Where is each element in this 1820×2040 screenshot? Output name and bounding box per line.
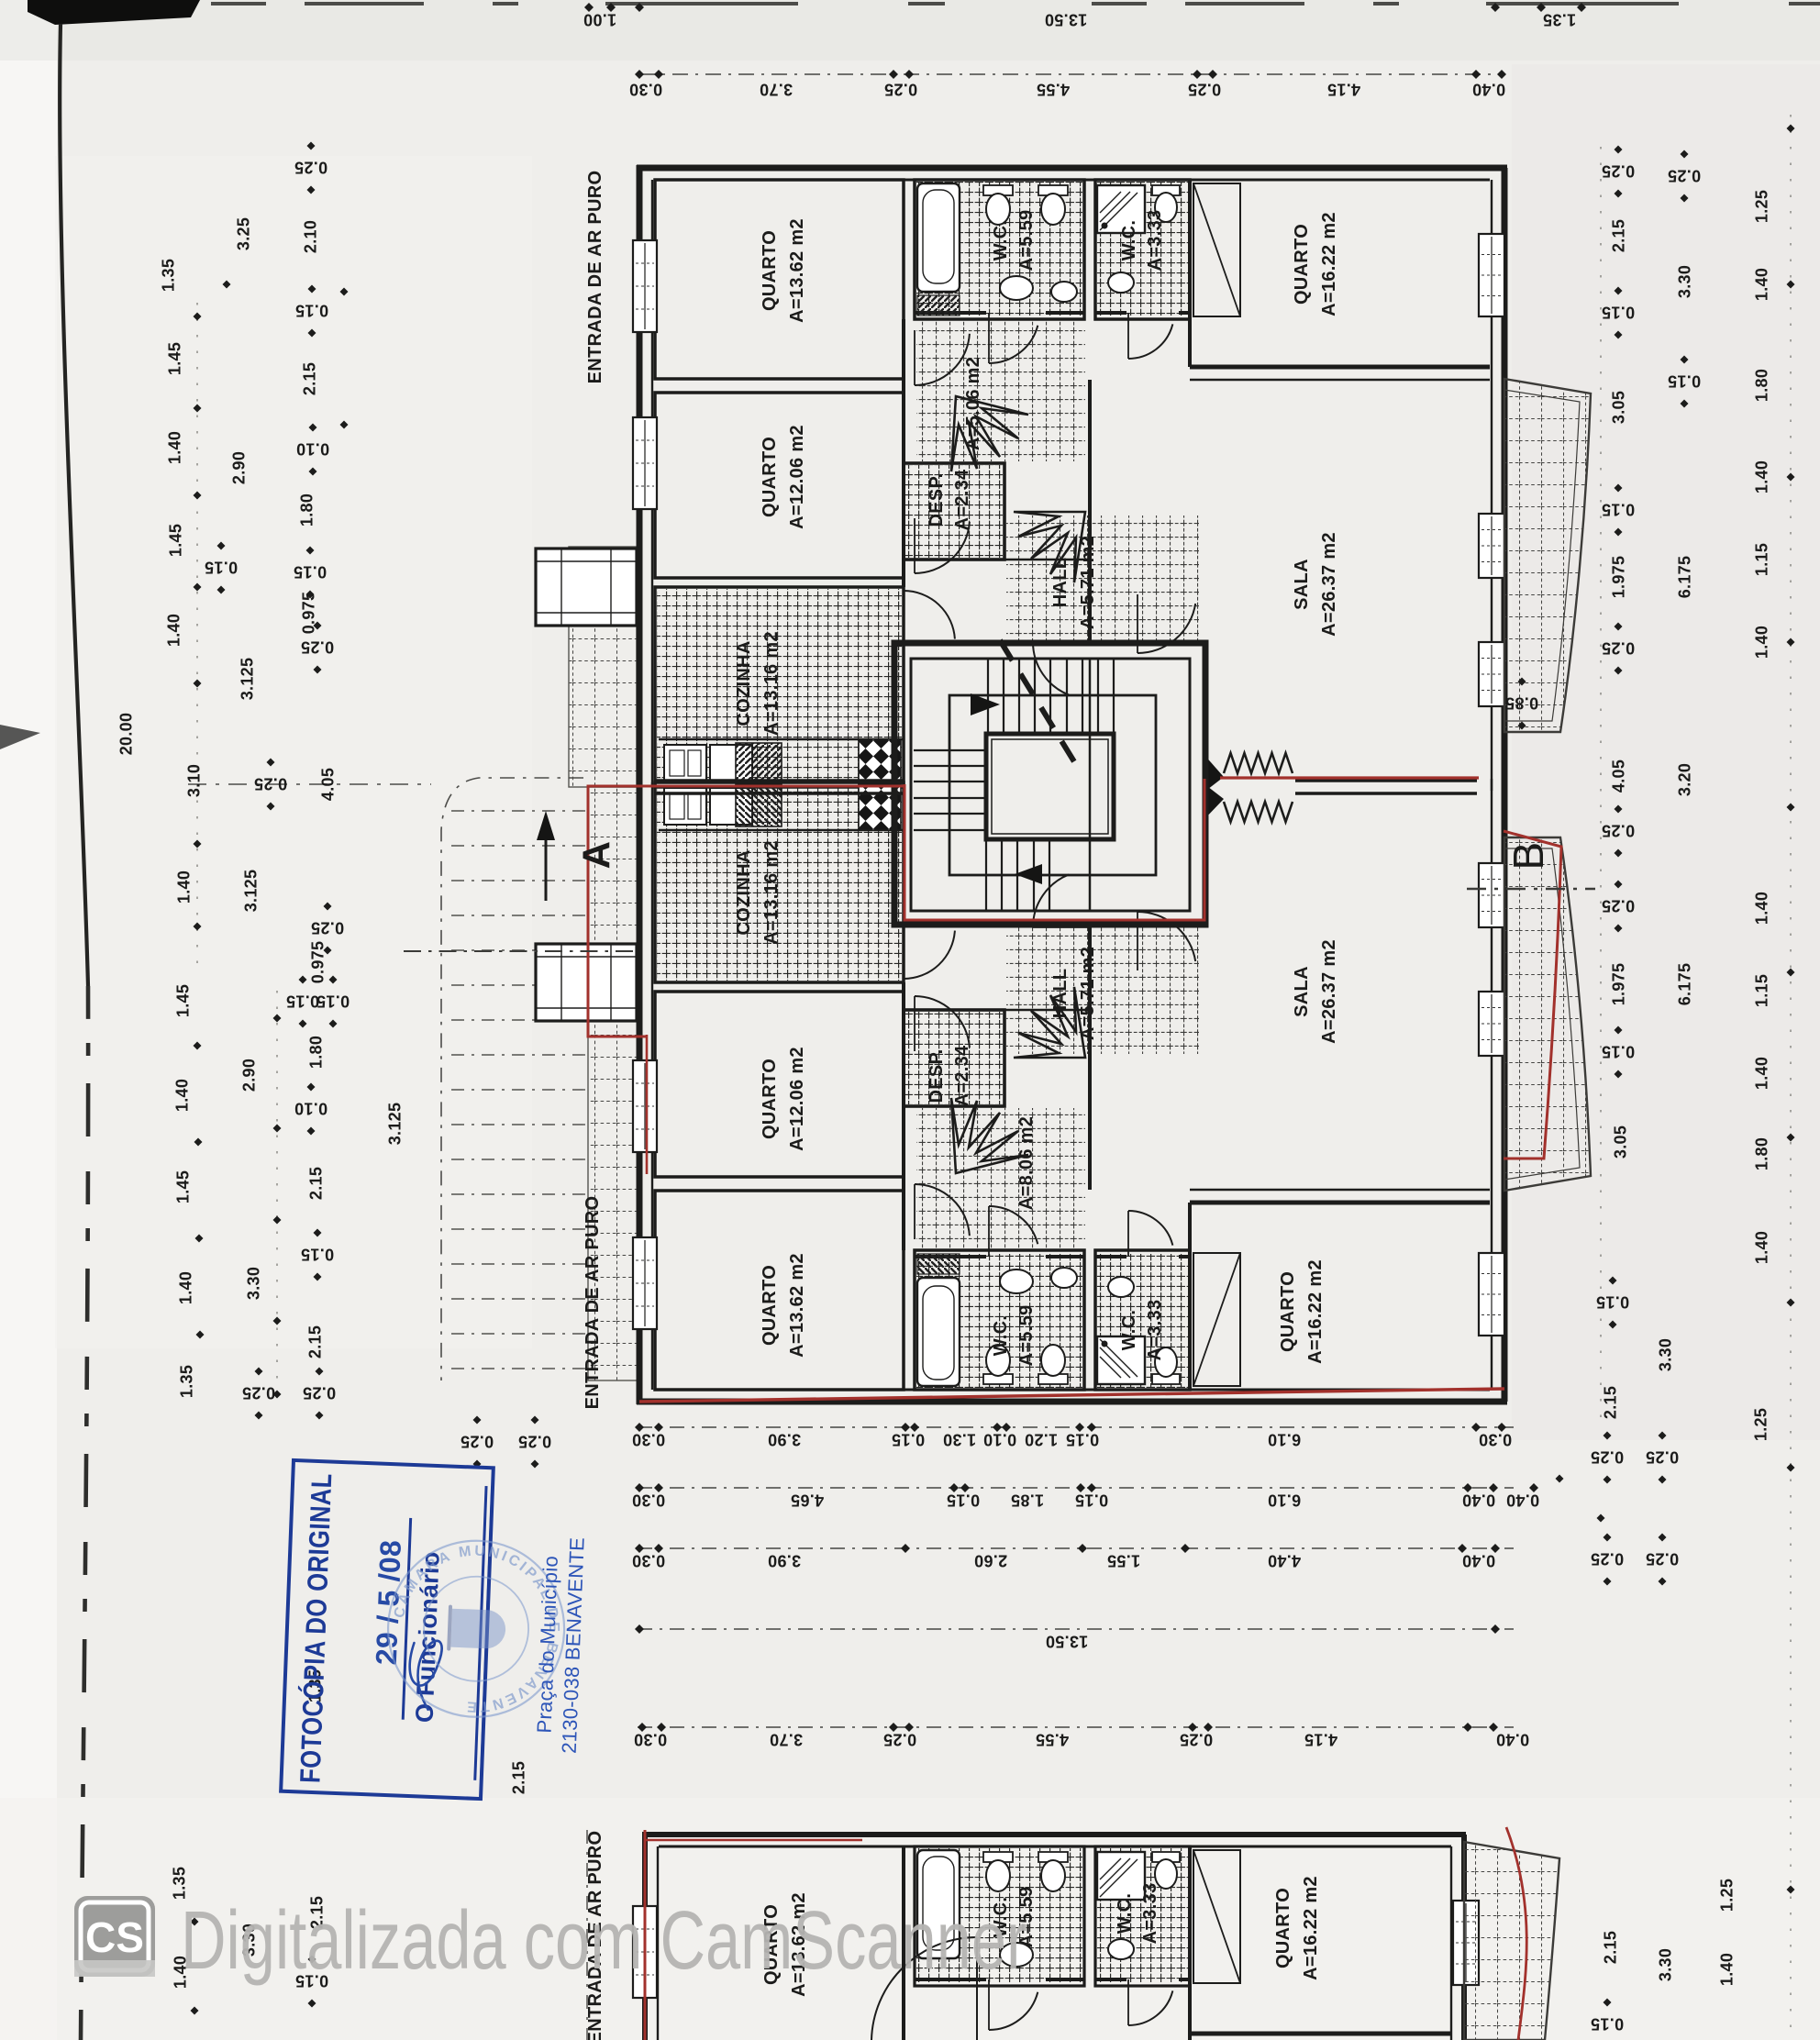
svg-text:0.25: 0.25 [461, 1433, 494, 1451]
svg-text:0.40: 0.40 [1496, 1731, 1529, 1749]
svg-text:COZINHA: COZINHA [734, 640, 754, 726]
svg-text:2.15: 2.15 [1609, 219, 1627, 252]
svg-text:W.C.: W.C. [1119, 1310, 1139, 1351]
svg-text:HALL: HALL [1050, 558, 1071, 608]
svg-text:4.05: 4.05 [1609, 759, 1627, 793]
svg-text:1.15: 1.15 [1752, 974, 1770, 1007]
svg-text:4.15: 4.15 [1304, 1731, 1337, 1749]
svg-text:0.40: 0.40 [1472, 81, 1505, 99]
svg-text:A=3.33: A=3.33 [1145, 1300, 1165, 1361]
svg-text:3.125: 3.125 [385, 1103, 404, 1146]
svg-text:QUARTO: QUARTO [1273, 1888, 1293, 1968]
svg-text:0.30: 0.30 [629, 81, 662, 99]
svg-text:A=16.22 m2: A=16.22 m2 [1305, 1259, 1326, 1364]
svg-text:4.55: 4.55 [1037, 81, 1070, 99]
svg-text:QUARTO: QUARTO [760, 1059, 780, 1139]
svg-text:0.25: 0.25 [1646, 1550, 1679, 1569]
svg-text:1.80: 1.80 [306, 1036, 325, 1069]
svg-text:QUARTO: QUARTO [760, 437, 780, 517]
svg-text:A=13.62 m2: A=13.62 m2 [787, 218, 807, 323]
svg-text:A=3.33: A=3.33 [1145, 210, 1165, 272]
svg-text:1.35: 1.35 [177, 1365, 195, 1398]
svg-text:QUARTO: QUARTO [760, 1265, 780, 1346]
svg-text:6.10: 6.10 [1268, 1491, 1301, 1510]
svg-text:4.05: 4.05 [318, 768, 337, 801]
svg-text:3.90: 3.90 [768, 1552, 801, 1570]
svg-text:QUARTO: QUARTO [760, 230, 780, 311]
svg-text:A=5.06 m2: A=5.06 m2 [963, 357, 983, 450]
svg-text:2.90: 2.90 [239, 1059, 258, 1092]
svg-text:1.40: 1.40 [164, 614, 183, 647]
svg-text:1.30: 1.30 [943, 1431, 976, 1449]
svg-text:1.40: 1.40 [1752, 1057, 1770, 1090]
svg-text:SALA: SALA [1292, 559, 1312, 610]
svg-text:0.30: 0.30 [634, 1731, 667, 1749]
svg-text:SALA: SALA [1292, 966, 1312, 1017]
svg-text:0.15: 0.15 [1602, 1043, 1635, 1061]
svg-text:1.35: 1.35 [1543, 11, 1576, 29]
svg-text:A=5.71 m2: A=5.71 m2 [1078, 947, 1098, 1040]
svg-text:6.10: 6.10 [1268, 1431, 1301, 1449]
svg-text:0.15: 0.15 [1602, 501, 1635, 519]
svg-text:A=13.16 m2: A=13.16 m2 [761, 840, 782, 945]
svg-text:1.35: 1.35 [159, 259, 177, 292]
svg-text:2.15: 2.15 [300, 362, 318, 395]
svg-text:A=5.59: A=5.59 [1016, 210, 1037, 272]
svg-text:3.30: 3.30 [1656, 1948, 1674, 1981]
svg-text:1.15: 1.15 [1752, 543, 1770, 576]
svg-text:1.80: 1.80 [1752, 369, 1770, 402]
svg-text:0.25: 0.25 [1602, 897, 1635, 915]
svg-text:2.15: 2.15 [305, 1325, 324, 1358]
svg-text:1.40: 1.40 [165, 431, 183, 464]
svg-text:1.975: 1.975 [1609, 963, 1627, 1006]
svg-text:0.25: 0.25 [1668, 167, 1701, 185]
svg-text:1.40: 1.40 [172, 1079, 191, 1112]
svg-text:3.25: 3.25 [234, 217, 252, 250]
svg-text:3.10: 3.10 [184, 764, 203, 797]
svg-text:1.40: 1.40 [176, 1271, 194, 1304]
svg-text:0.25: 0.25 [294, 159, 327, 177]
svg-text:HALL: HALL [1050, 969, 1071, 1019]
svg-text:3.125: 3.125 [238, 658, 256, 701]
svg-text:1.55: 1.55 [1107, 1552, 1140, 1570]
svg-text:0.30: 0.30 [632, 1491, 665, 1510]
svg-text:0.25: 0.25 [1646, 1448, 1679, 1467]
svg-text:0.15: 0.15 [1066, 1431, 1099, 1449]
svg-text:0.25: 0.25 [311, 919, 344, 937]
svg-text:0.15: 0.15 [1602, 304, 1635, 322]
svg-text:3.30: 3.30 [244, 1267, 262, 1300]
svg-text:2.15: 2.15 [509, 1761, 527, 1794]
svg-text:1.40: 1.40 [1752, 460, 1770, 493]
svg-text:0.25: 0.25 [254, 775, 287, 793]
svg-text:0.25: 0.25 [883, 1731, 916, 1749]
svg-text:A=16.22 m2: A=16.22 m2 [1319, 212, 1339, 316]
svg-text:2.15: 2.15 [1601, 1931, 1619, 1964]
svg-text:0.15: 0.15 [1591, 2015, 1624, 2034]
svg-text:0.15: 0.15 [1596, 1293, 1629, 1312]
svg-text:1.80: 1.80 [297, 493, 316, 527]
svg-text:0.85: 0.85 [1505, 694, 1538, 713]
svg-text:1.80: 1.80 [1752, 1137, 1770, 1170]
svg-text:COZINHA: COZINHA [734, 849, 754, 935]
svg-text:0.15: 0.15 [892, 1431, 925, 1449]
svg-text:A=5.59: A=5.59 [1016, 1305, 1037, 1367]
svg-text:1.25: 1.25 [1717, 1879, 1736, 1912]
svg-text:A=16.22 m2: A=16.22 m2 [1301, 1876, 1321, 1980]
svg-text:0.25: 0.25 [1591, 1448, 1624, 1467]
svg-text:4.15: 4.15 [1327, 81, 1360, 99]
svg-text:A=2.34: A=2.34 [952, 1045, 972, 1106]
svg-text:A=12.06 m2: A=12.06 m2 [787, 425, 807, 529]
svg-text:0.975: 0.975 [308, 941, 327, 984]
svg-text:A=8.06 m2: A=8.06 m2 [1016, 1116, 1037, 1210]
svg-text:0.25: 0.25 [303, 1384, 336, 1402]
svg-text:ENTRADA DE AR PURO: ENTRADA DE AR PURO [585, 171, 605, 384]
svg-text:2.10: 2.10 [301, 220, 319, 253]
svg-text:0.25: 0.25 [242, 1384, 275, 1402]
svg-text:1.40: 1.40 [1752, 626, 1770, 659]
svg-text:W.C.: W.C. [991, 220, 1011, 261]
svg-text:0.15: 0.15 [947, 1491, 980, 1510]
svg-text:1.25: 1.25 [1751, 1408, 1770, 1441]
svg-text:0.40: 0.40 [1506, 1491, 1539, 1510]
svg-text:3.125: 3.125 [241, 870, 260, 913]
svg-text:0.40: 0.40 [1462, 1491, 1495, 1510]
svg-text:0.15: 0.15 [301, 1246, 334, 1264]
svg-text:A=5.71 m2: A=5.71 m2 [1078, 536, 1098, 629]
svg-text:3.20: 3.20 [1675, 763, 1693, 796]
svg-text:1.40: 1.40 [174, 870, 193, 904]
svg-text:0.15: 0.15 [1668, 372, 1701, 391]
svg-text:W.C.: W.C. [991, 1315, 1011, 1357]
svg-text:0.30: 0.30 [632, 1552, 665, 1570]
svg-text:0.10: 0.10 [983, 1431, 1016, 1449]
svg-text:B: B [1504, 842, 1552, 870]
svg-text:QUARTO: QUARTO [1292, 224, 1312, 305]
svg-text:0.15: 0.15 [286, 992, 319, 1011]
svg-text:ENTRADA DE AR PURO: ENTRADA DE AR PURO [583, 1196, 603, 1410]
svg-text:3.05: 3.05 [1611, 1125, 1629, 1159]
svg-text:1.20: 1.20 [1025, 1431, 1058, 1449]
svg-text:3.90: 3.90 [768, 1431, 801, 1449]
svg-text:4.40: 4.40 [1268, 1552, 1301, 1570]
svg-text:20.00: 20.00 [117, 713, 135, 756]
svg-text:1.975: 1.975 [1609, 556, 1627, 599]
svg-text:W.C.: W.C. [1119, 220, 1139, 261]
svg-text:A=26.37 m2: A=26.37 m2 [1319, 532, 1339, 637]
svg-text:0.975: 0.975 [299, 592, 317, 635]
svg-text:1.40: 1.40 [1752, 268, 1770, 301]
svg-text:0.15: 0.15 [295, 302, 328, 320]
svg-text:0.25: 0.25 [1180, 1731, 1213, 1749]
svg-text:1.45: 1.45 [173, 984, 192, 1017]
svg-text:4.55: 4.55 [1036, 1731, 1069, 1749]
svg-text:0.30: 0.30 [1479, 1431, 1512, 1449]
svg-text:13.50: 13.50 [1046, 1633, 1089, 1651]
svg-text:0.25: 0.25 [1591, 1550, 1624, 1569]
svg-text:4.65: 4.65 [791, 1491, 824, 1510]
svg-text:1.40: 1.40 [1752, 1231, 1770, 1264]
svg-text:0.15: 0.15 [1075, 1491, 1108, 1510]
svg-text:2.15: 2.15 [306, 1167, 325, 1200]
svg-text:0.30: 0.30 [632, 1431, 665, 1449]
svg-text:3.70: 3.70 [760, 81, 793, 99]
svg-text:A=2.34: A=2.34 [952, 469, 972, 530]
svg-text:0.25: 0.25 [1602, 822, 1635, 840]
svg-text:1.45: 1.45 [173, 1170, 192, 1203]
svg-text:A=13.16 m2: A=13.16 m2 [761, 631, 782, 736]
svg-text:A=3.33: A=3.33 [1140, 1883, 1160, 1945]
svg-text:3.05: 3.05 [1609, 391, 1627, 424]
svg-text:2.15: 2.15 [1601, 1386, 1619, 1419]
svg-text:13.50: 13.50 [1045, 11, 1088, 29]
svg-text:2.90: 2.90 [229, 451, 248, 484]
svg-text:6.175: 6.175 [1675, 963, 1693, 1006]
svg-text:0.25: 0.25 [1602, 162, 1635, 181]
svg-text:1.45: 1.45 [165, 342, 183, 375]
svg-text:0.40: 0.40 [1462, 1552, 1495, 1570]
svg-text:3.30: 3.30 [1656, 1338, 1674, 1371]
svg-text:A=13.62 m2: A=13.62 m2 [787, 1253, 807, 1358]
svg-text:W.C.: W.C. [1115, 1893, 1135, 1935]
svg-text:2.60: 2.60 [974, 1552, 1007, 1570]
svg-text:0.25: 0.25 [1188, 81, 1221, 99]
svg-text:A: A [575, 841, 618, 870]
svg-text:3.70: 3.70 [770, 1731, 803, 1749]
svg-text:1.85: 1.85 [1011, 1491, 1044, 1510]
svg-text:0.25: 0.25 [301, 638, 334, 657]
svg-text:1.45: 1.45 [166, 524, 184, 557]
svg-text:0.25: 0.25 [1602, 639, 1635, 658]
svg-text:1.25: 1.25 [1752, 190, 1770, 223]
svg-text:0.15: 0.15 [294, 563, 327, 582]
svg-text:3.30: 3.30 [1675, 265, 1693, 298]
svg-text:DESP.: DESP. [927, 473, 947, 527]
svg-text:0.25: 0.25 [518, 1433, 551, 1451]
svg-text:Digitalizada com CamScanner: Digitalizada com CamScanner [181, 1894, 1027, 1986]
svg-text:1.00: 1.00 [583, 11, 616, 29]
svg-text:A=12.06 m2: A=12.06 m2 [787, 1047, 807, 1151]
svg-text:DESP.: DESP. [927, 1049, 947, 1103]
svg-text:0.15: 0.15 [205, 559, 238, 577]
svg-text:0.25: 0.25 [884, 81, 917, 99]
svg-text:0.10: 0.10 [296, 440, 329, 459]
svg-text:1.40: 1.40 [1717, 1953, 1736, 1986]
svg-text:0.10: 0.10 [294, 1100, 327, 1118]
svg-text:1.40: 1.40 [1752, 892, 1770, 925]
svg-text:CS: CS [85, 1913, 144, 1961]
svg-text:A=26.37 m2: A=26.37 m2 [1319, 939, 1339, 1044]
svg-text:QUARTO: QUARTO [1278, 1271, 1298, 1352]
svg-text:6.175: 6.175 [1675, 556, 1693, 599]
svg-text:0.15: 0.15 [316, 992, 350, 1011]
